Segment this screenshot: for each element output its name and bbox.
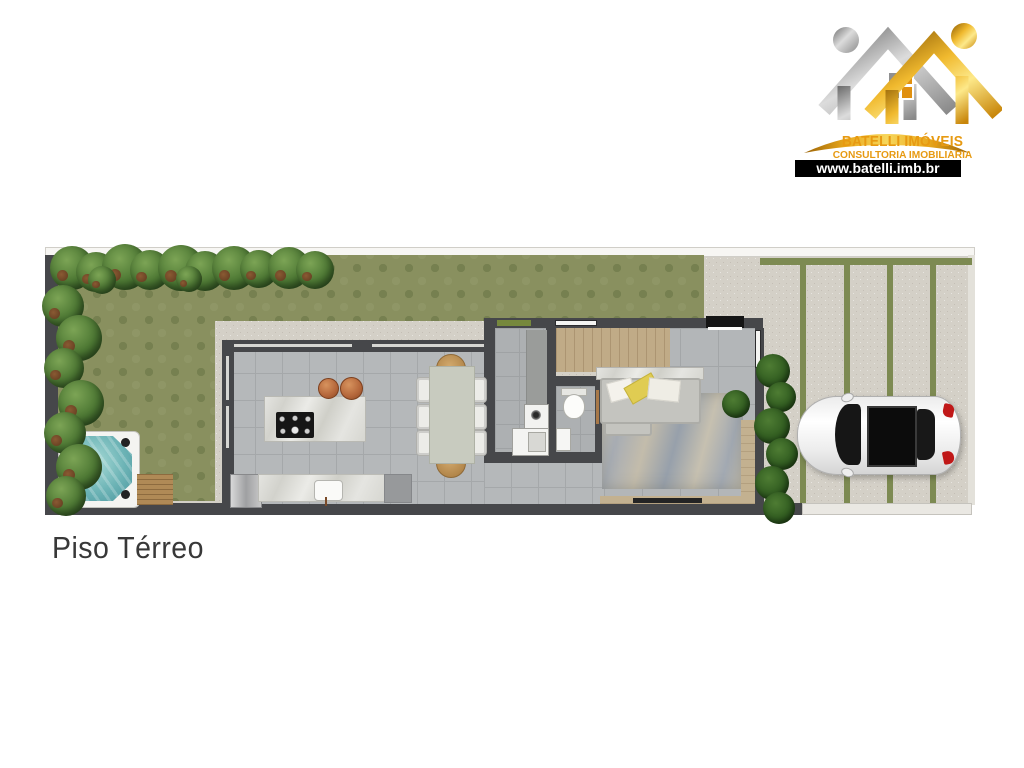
kitchen-window-1 bbox=[234, 344, 352, 347]
company-logo: BATELLI IMÓVEIS CONSULTORIA IMOBILIÁRIA … bbox=[795, 12, 1010, 182]
living-plant bbox=[722, 390, 750, 418]
entry-top-window bbox=[556, 321, 596, 325]
laundry-tank-basin bbox=[528, 432, 546, 452]
kitchen-window-2 bbox=[372, 344, 484, 347]
tree-icon bbox=[296, 251, 334, 289]
hot-tub-corner-2 bbox=[121, 438, 130, 447]
parked-car bbox=[797, 396, 959, 473]
living-top-unit-sill bbox=[708, 327, 742, 330]
logo-houses-icon bbox=[812, 14, 1002, 132]
kitchen-side-window-2 bbox=[226, 406, 229, 448]
pot-2 bbox=[340, 377, 363, 400]
washer-door bbox=[531, 410, 541, 420]
logo-website: www.batelli.imb.br bbox=[795, 160, 961, 177]
dining-table bbox=[429, 366, 475, 464]
tree-icon bbox=[88, 266, 116, 294]
page: Piso Térreo bbox=[0, 0, 1024, 768]
pot-1 bbox=[318, 378, 339, 399]
bathroom-door bbox=[596, 390, 599, 424]
kitchen-sink bbox=[314, 480, 343, 501]
bathroom-sink bbox=[556, 428, 571, 451]
toilet bbox=[563, 394, 585, 419]
laundry-window-planter bbox=[497, 320, 531, 326]
sofa-chaise bbox=[604, 422, 652, 436]
car-windshield bbox=[835, 404, 861, 465]
tree-icon bbox=[176, 266, 202, 292]
kitchen-cabinet bbox=[384, 474, 412, 503]
wood-deck bbox=[137, 474, 173, 505]
sidewalk bbox=[802, 503, 972, 515]
entry-hall-wood-floor bbox=[556, 328, 670, 372]
lot-right-edge bbox=[968, 255, 975, 505]
driveway-strip-horizontal bbox=[760, 258, 972, 265]
hot-tub-corner-4 bbox=[121, 490, 130, 499]
cooktop bbox=[276, 412, 314, 438]
car-rear-window bbox=[917, 409, 935, 460]
kitchen-side-window-1 bbox=[226, 356, 229, 400]
logo-company-name: BATELLI IMÓVEIS bbox=[800, 134, 1004, 150]
bush-icon bbox=[763, 492, 795, 524]
tree-icon bbox=[46, 476, 86, 516]
plan-caption: Piso Térreo bbox=[52, 530, 204, 566]
passage-floor bbox=[484, 460, 604, 504]
kitchen-faucet bbox=[325, 497, 327, 506]
living-wood-border-right bbox=[741, 420, 755, 500]
laundry-counter bbox=[526, 330, 547, 404]
sofa-pillow-2 bbox=[647, 377, 681, 402]
tv-console bbox=[633, 498, 702, 503]
car-roof bbox=[867, 406, 917, 467]
